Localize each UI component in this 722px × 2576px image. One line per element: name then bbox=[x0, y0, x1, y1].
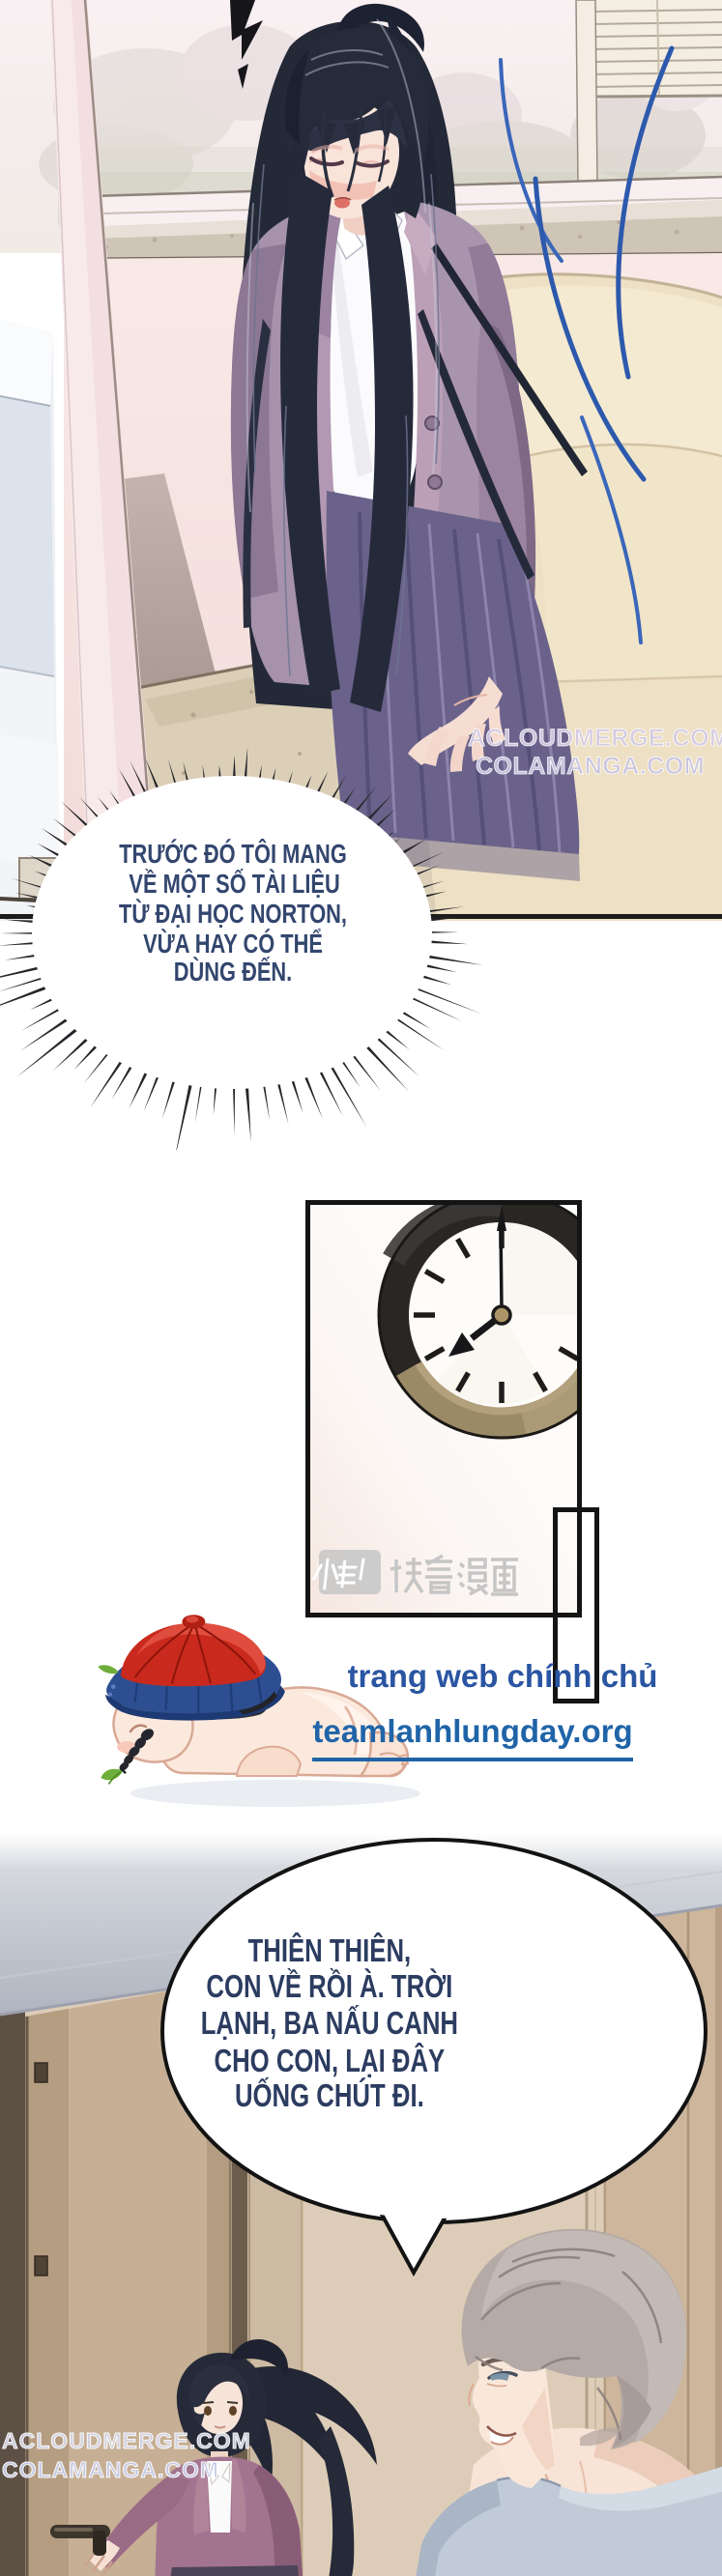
svg-text:CON VỀ RỒI À. TRỜI: CON VỀ RỒI À. TRỜI bbox=[206, 1968, 452, 2005]
svg-text:COLAMANGA.COM: COLAMANGA.COM bbox=[2, 2457, 219, 2482]
svg-text:TRƯỚC ĐÓ TÔI MANG: TRƯỚC ĐÓ TÔI MANG bbox=[119, 837, 347, 869]
svg-text:DÙNG ĐẾN.: DÙNG ĐẾN. bbox=[174, 955, 292, 987]
svg-text:UỐNG CHÚT ĐI.: UỐNG CHÚT ĐI. bbox=[235, 2077, 424, 2114]
svg-text:ACLOUDMERGE.COM: ACLOUDMERGE.COM bbox=[2, 2428, 251, 2453]
svg-text:THIÊN THIÊN,: THIÊN THIÊN, bbox=[248, 1932, 412, 1969]
svg-text:CHO CON, LẠI ĐÂY: CHO CON, LẠI ĐÂY bbox=[215, 2043, 446, 2079]
svg-text:VỀ MỘT SỐ TÀI LIỆU: VỀ MỘT SỐ TÀI LIỆU bbox=[129, 867, 339, 899]
svg-text:TỪ ĐẠI HỌC NORTON,: TỪ ĐẠI HỌC NORTON, bbox=[119, 897, 347, 929]
svg-text:VỪA HAY CÓ THỂ: VỪA HAY CÓ THỂ bbox=[143, 927, 323, 959]
svg-text:LẠNH, BA NẤU CANH: LẠNH, BA NẤU CANH bbox=[201, 2005, 458, 2042]
